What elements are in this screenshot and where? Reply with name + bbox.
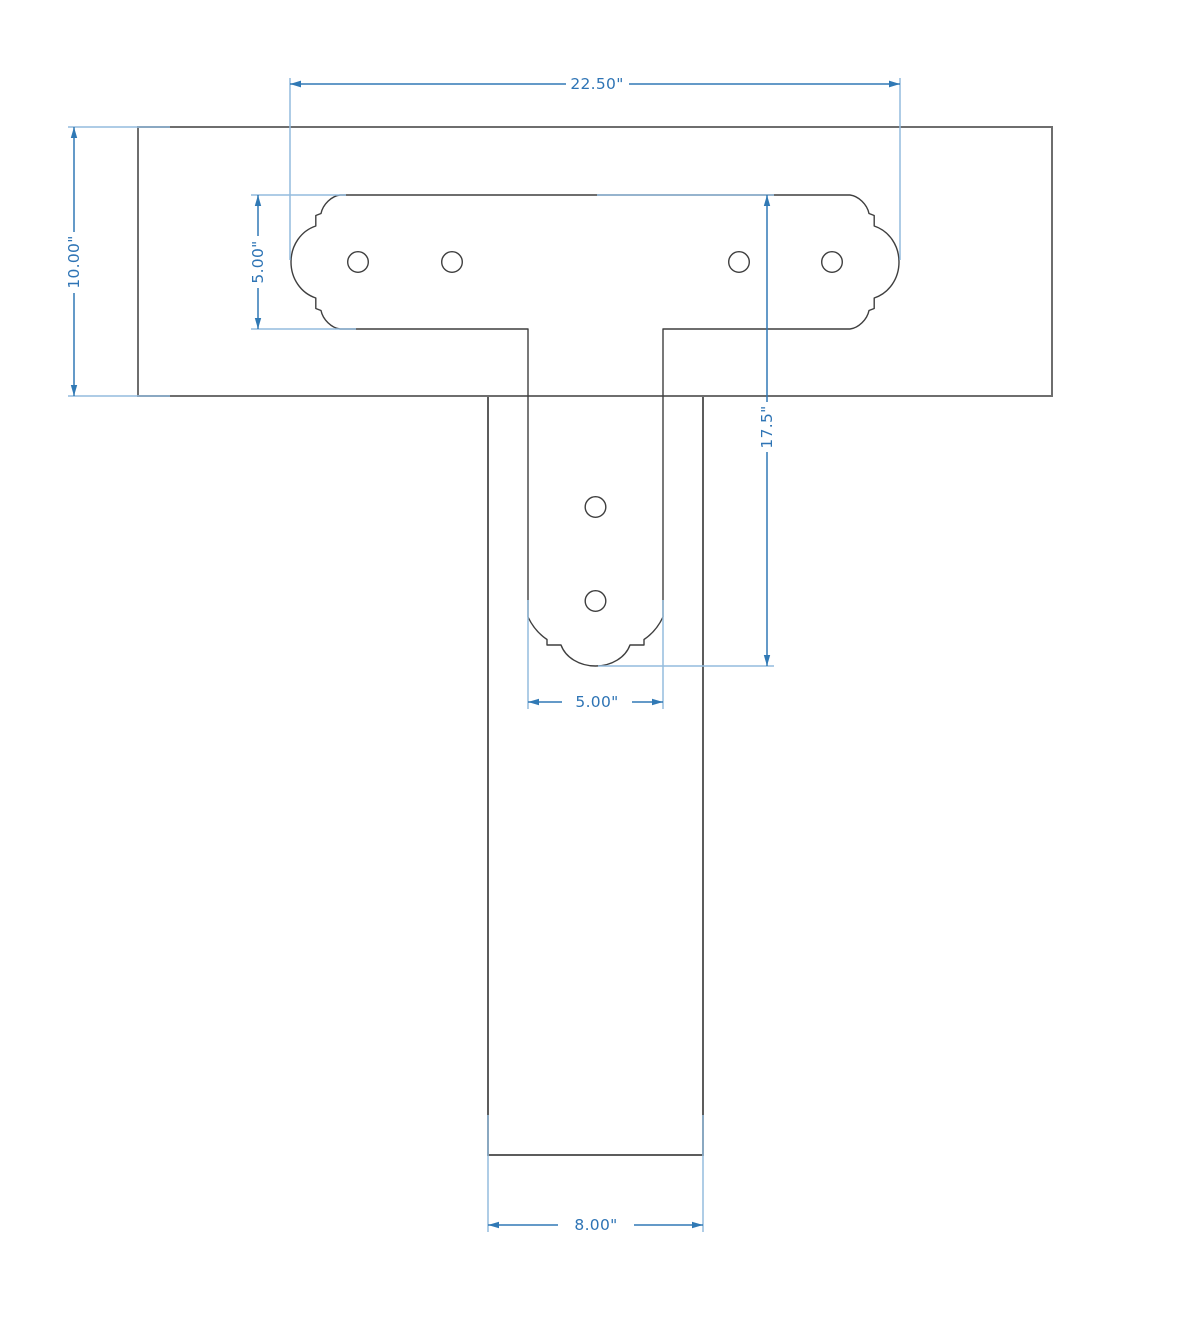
dimension-label-arm-height: 5.00" bbox=[249, 240, 267, 283]
dimension-label-overall-height: 17.5" bbox=[758, 405, 776, 448]
drawing-canvas: 22.50" 10.00" 5.00" 17.5" 5.00" 8.00" bbox=[0, 0, 1192, 1325]
dimension-label-bracket-width: 22.50" bbox=[570, 75, 623, 93]
dimension-label-post-width: 8.00" bbox=[574, 1216, 617, 1234]
bolt-hole-arm-3 bbox=[729, 252, 750, 273]
beam-outline bbox=[138, 127, 1052, 396]
bolt-hole-stem-2 bbox=[585, 591, 606, 612]
arrow-post-width-right bbox=[692, 1222, 703, 1228]
technical-drawing: 22.50" 10.00" 5.00" 17.5" 5.00" 8.00" bbox=[0, 0, 1192, 1325]
bolt-hole-stem-1 bbox=[585, 497, 606, 518]
dimension-label-beam-height: 10.00" bbox=[65, 235, 83, 288]
dimension-label-stem-width: 5.00" bbox=[575, 693, 618, 711]
bolt-hole-arm-1 bbox=[348, 252, 369, 273]
arrow-beam-height-top bbox=[71, 127, 77, 138]
beam-group bbox=[138, 127, 1052, 396]
arrow-bracket-width-right bbox=[889, 81, 900, 88]
arrow-beam-height-bottom bbox=[71, 385, 77, 396]
arrow-bracket-width-left bbox=[290, 81, 301, 88]
arrow-overall-height-bottom bbox=[764, 655, 770, 666]
arrow-post-width-left bbox=[488, 1222, 499, 1228]
bolt-hole-arm-4 bbox=[822, 252, 843, 273]
bolt-hole-arm-2 bbox=[442, 252, 463, 273]
